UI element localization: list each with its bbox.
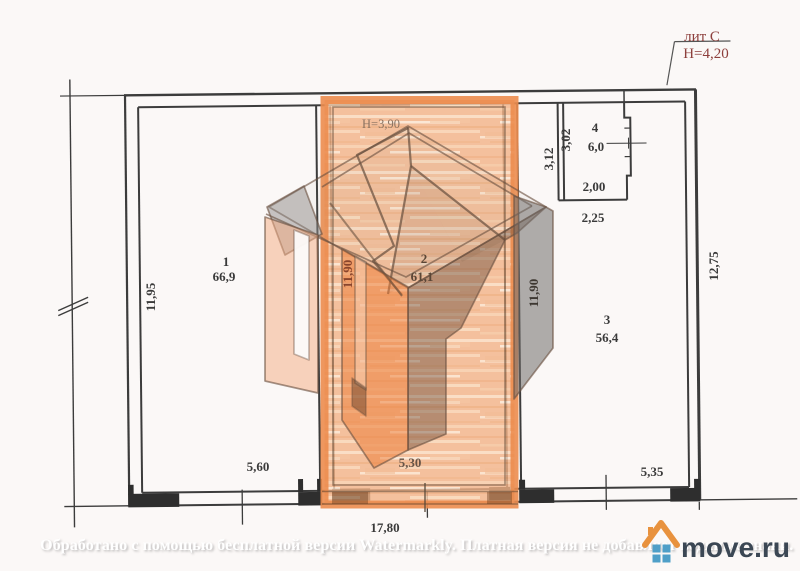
- svg-text:66,9: 66,9: [213, 269, 236, 284]
- svg-text:3,12: 3,12: [541, 148, 556, 171]
- svg-text:17,80: 17,80: [370, 520, 399, 535]
- svg-text:Н=3,90: Н=3,90: [362, 117, 400, 131]
- svg-text:6,0: 6,0: [588, 139, 604, 154]
- svg-text:3,02: 3,02: [558, 129, 573, 152]
- svg-text:12,75: 12,75: [706, 251, 721, 281]
- svg-text:5,35: 5,35: [641, 464, 664, 479]
- svg-text:2: 2: [421, 251, 428, 266]
- svg-text:2,00: 2,00: [583, 179, 606, 194]
- svg-text:61,1: 61,1: [411, 269, 434, 284]
- svg-text:move.ru: move.ru: [681, 532, 790, 563]
- svg-text:11,90: 11,90: [526, 279, 541, 308]
- svg-text:5,60: 5,60: [247, 459, 270, 474]
- svg-text:3: 3: [604, 312, 611, 327]
- svg-text:лит С: лит С: [684, 29, 720, 45]
- svg-text:5,30: 5,30: [399, 455, 422, 470]
- svg-text:11,90: 11,90: [340, 260, 355, 289]
- svg-text:56,4: 56,4: [596, 330, 619, 345]
- svg-text:1: 1: [223, 254, 230, 269]
- svg-text:2,25: 2,25: [582, 210, 605, 225]
- svg-text:4: 4: [592, 120, 599, 135]
- svg-text:Н=4,20: Н=4,20: [683, 46, 729, 62]
- svg-text:11,95: 11,95: [143, 282, 158, 311]
